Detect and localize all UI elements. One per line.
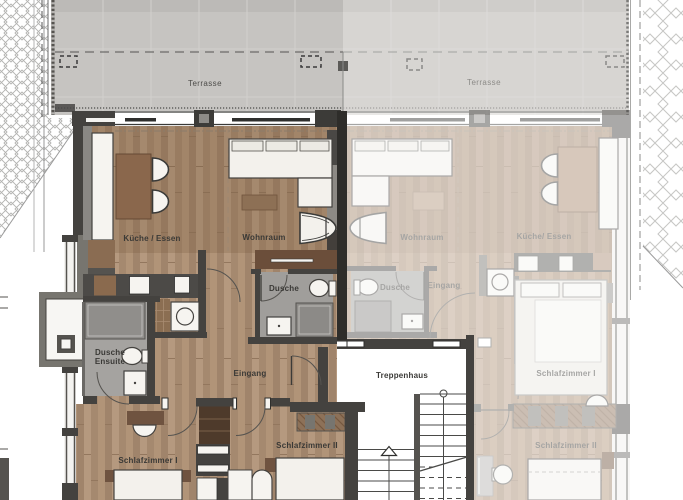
svg-text:Dusche: Dusche bbox=[95, 348, 125, 357]
svg-text:Schlafzimmer I: Schlafzimmer I bbox=[536, 369, 595, 378]
svg-text:Küche / Essen: Küche / Essen bbox=[123, 234, 180, 243]
svg-text:Ensuite: Ensuite bbox=[95, 357, 126, 366]
svg-text:Dusche: Dusche bbox=[269, 284, 299, 293]
svg-text:Terrasse: Terrasse bbox=[467, 78, 501, 87]
svg-text:Küche/ Essen: Küche/ Essen bbox=[517, 232, 572, 241]
svg-text:Schlafzimmer I: Schlafzimmer I bbox=[118, 456, 177, 465]
svg-text:Wohnraum: Wohnraum bbox=[400, 233, 443, 242]
svg-text:Schlafzimmer II: Schlafzimmer II bbox=[535, 441, 597, 450]
svg-text:Terrasse: Terrasse bbox=[188, 79, 222, 88]
svg-text:Schlafzimmer II: Schlafzimmer II bbox=[276, 441, 338, 450]
svg-text:Wohnraum: Wohnraum bbox=[242, 233, 285, 242]
svg-text:Treppenhaus: Treppenhaus bbox=[376, 371, 428, 380]
svg-text:Eingang: Eingang bbox=[234, 369, 267, 378]
svg-text:Dusche: Dusche bbox=[380, 283, 410, 292]
svg-text:Eingang: Eingang bbox=[428, 281, 461, 290]
